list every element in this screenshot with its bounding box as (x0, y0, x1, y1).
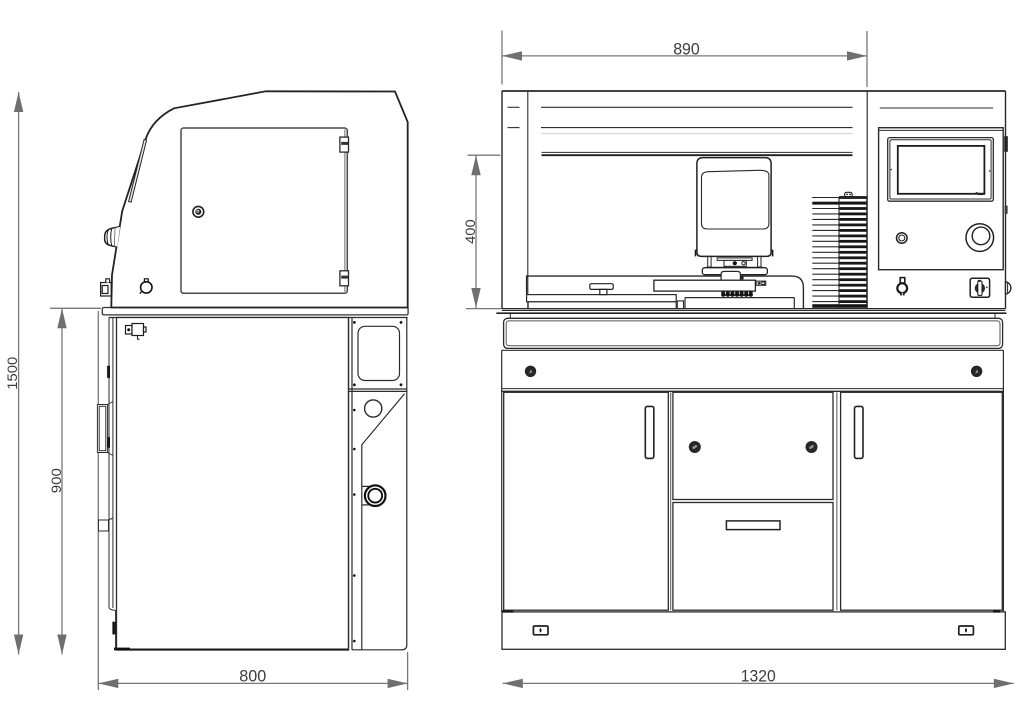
svg-text:1500: 1500 (4, 356, 20, 389)
svg-text:900: 900 (48, 468, 64, 493)
svg-text:890: 890 (673, 39, 700, 58)
svg-text:1320: 1320 (741, 667, 776, 686)
svg-text:800: 800 (239, 667, 266, 686)
svg-text:400: 400 (462, 219, 478, 244)
